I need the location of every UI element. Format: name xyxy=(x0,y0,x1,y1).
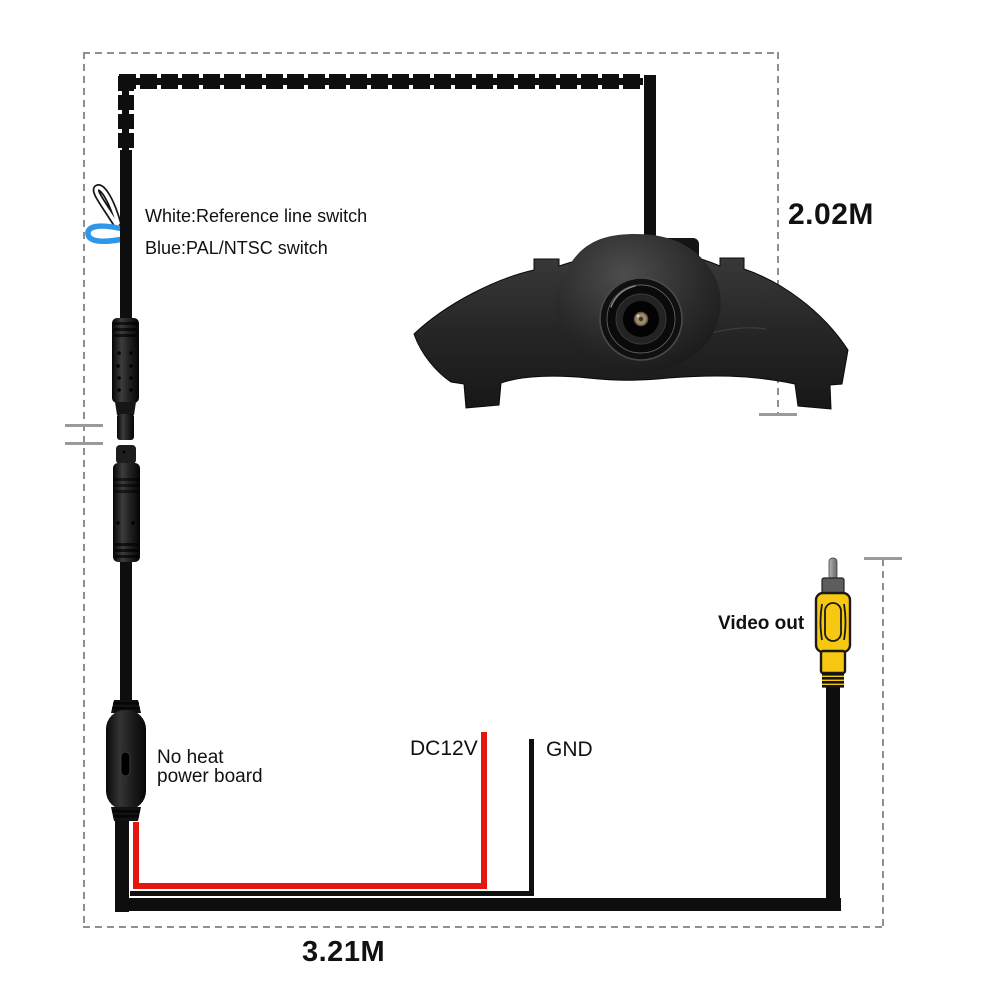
rca-neck xyxy=(821,651,845,673)
ground-wire-vertical xyxy=(529,739,534,896)
measure-tick-video xyxy=(864,557,902,560)
main-cable-upper xyxy=(120,150,132,320)
bottom-cable-horizontal xyxy=(115,898,841,911)
main-cable-middle xyxy=(120,560,132,706)
cable-connector-pair xyxy=(105,313,145,568)
power-board-label: No heat power board xyxy=(157,748,263,786)
blue-switch-label: Blue:PAL/NTSC switch xyxy=(145,238,328,259)
power-wire-red-vertical xyxy=(481,732,487,889)
white-switch-label: White:Reference line switch xyxy=(145,206,367,227)
power-wire-red-stub xyxy=(133,822,139,889)
dc12v-label: DC12V xyxy=(410,737,478,761)
camera-drop-cable xyxy=(644,75,656,245)
camera-cable-length-label: 2.02M xyxy=(788,198,874,232)
video-out-label: Video out xyxy=(718,613,804,635)
border-dashed-bottom xyxy=(83,926,885,928)
break-tick-upper xyxy=(65,424,103,427)
measure-line-video-cable xyxy=(882,559,884,927)
ground-wire-horizontal xyxy=(130,891,534,896)
wiring-diagram: White:Reference line switch Blue:PAL/NTS… xyxy=(0,0,1000,1000)
rca-collar xyxy=(822,578,844,593)
power-board-label-line2: power board xyxy=(157,767,263,786)
blue-switch-loop xyxy=(88,226,123,241)
camera-illustration xyxy=(408,232,852,422)
camera-lens xyxy=(600,278,682,360)
power-board xyxy=(98,698,156,824)
power-board-slot xyxy=(121,752,130,776)
power-board-label-line1: No heat xyxy=(157,748,263,767)
power-cable-length-label: 3.21M xyxy=(302,936,385,969)
rca-video-plug xyxy=(808,556,856,690)
video-cable-vertical xyxy=(826,687,840,911)
break-tick-lower xyxy=(65,442,103,445)
power-wire-red-horizontal xyxy=(133,883,487,889)
corrugated-cable-vertical xyxy=(118,76,134,152)
connector-male xyxy=(112,318,139,440)
border-dashed-top xyxy=(83,52,779,54)
connector-female xyxy=(113,445,140,562)
corrugated-cable-horizontal xyxy=(119,74,643,89)
rca-ribs xyxy=(822,673,844,688)
rca-pin xyxy=(829,558,837,580)
gnd-label: GND xyxy=(546,738,593,762)
